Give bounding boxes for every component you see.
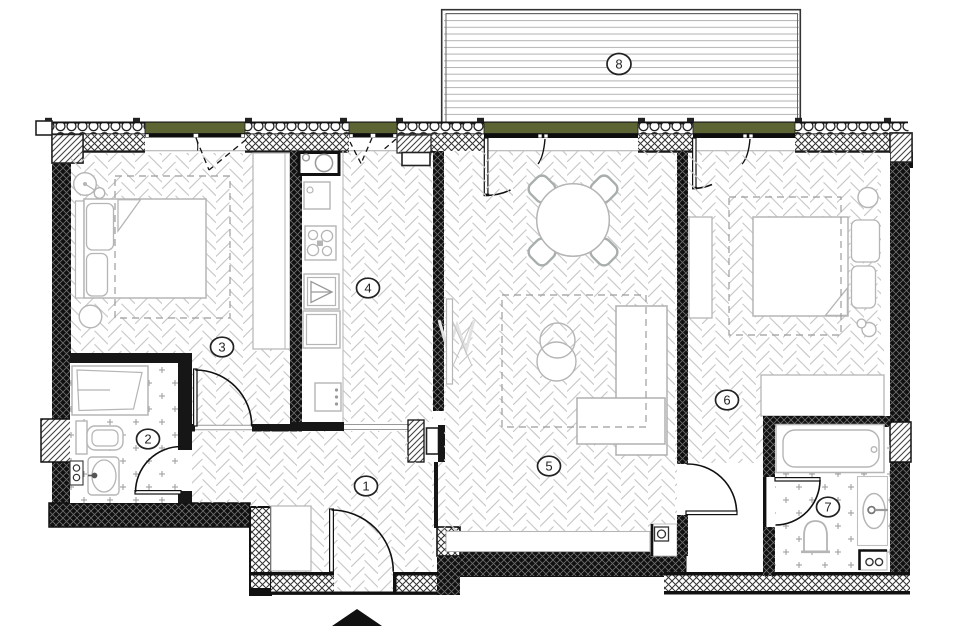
svg-text:3: 3: [218, 339, 225, 354]
svg-text:7: 7: [824, 499, 831, 514]
svg-text:5: 5: [545, 458, 552, 473]
svg-text:4: 4: [364, 280, 371, 295]
svg-text:1: 1: [362, 478, 369, 493]
svg-text:2: 2: [144, 431, 151, 446]
svg-text:8: 8: [615, 56, 622, 71]
svg-text:6: 6: [723, 392, 730, 407]
